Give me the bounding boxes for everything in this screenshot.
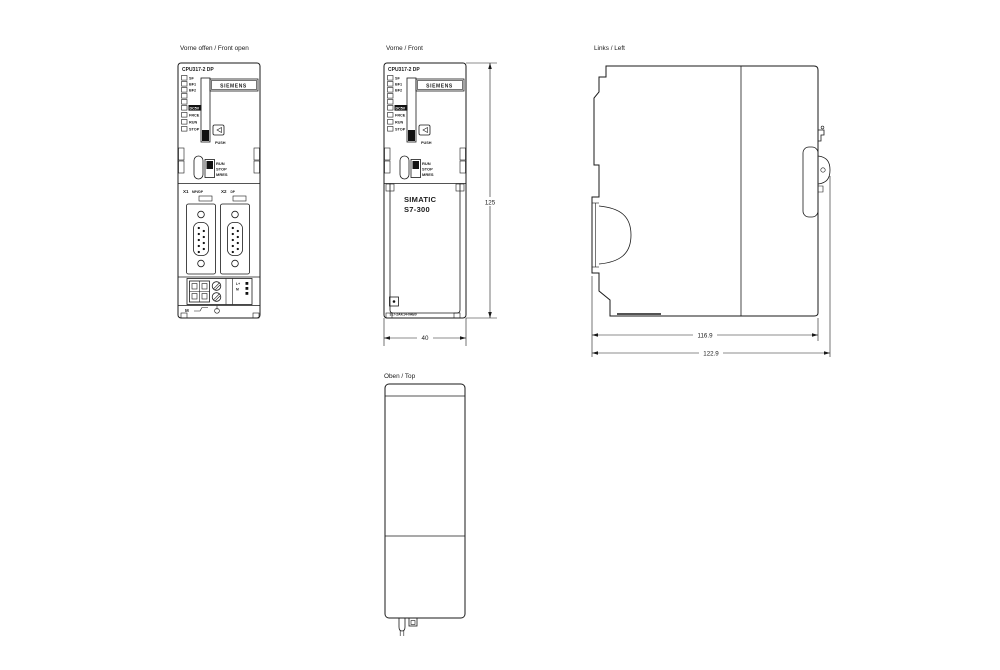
led-label-run: RUN — [395, 121, 403, 125]
mode-selector-switch: RUN STOP MRES — [400, 156, 434, 179]
hinge-tab — [179, 148, 185, 160]
hinge-tab — [179, 161, 185, 173]
hinge-tab — [460, 161, 466, 173]
memory-card-slot — [407, 78, 416, 142]
terminal-screw-icon — [212, 293, 221, 302]
switch-stop-label: STOP — [216, 167, 227, 172]
led-label-sf: SF — [395, 77, 401, 81]
side-profile-outline — [592, 66, 818, 316]
dimension-height-value: 125 — [485, 200, 496, 207]
terminal-m-label: M — [236, 288, 239, 292]
led-label-dc5v: DC5V — [396, 107, 406, 111]
din-rail-clip — [803, 126, 830, 217]
port-x2-type-label: DP — [231, 190, 236, 194]
title-left: Links / Left — [594, 45, 625, 52]
port-x1-label: X1 — [183, 189, 189, 194]
switch-symbol — [194, 308, 208, 312]
mounting-foot — [454, 313, 460, 318]
led-label-stop: STOP — [189, 128, 200, 132]
hinge-tab — [254, 161, 260, 173]
mode-selector-switch: RUN STOP MRES — [194, 156, 228, 179]
switch-mres-label: MRES — [216, 172, 228, 177]
view-top — [385, 384, 465, 636]
module-body-outline — [384, 63, 466, 318]
connector-latch — [233, 196, 246, 201]
dimension-depth-body-value: 116.9 — [697, 333, 713, 340]
cpu-header-label: CPU317-2 DP — [388, 67, 420, 73]
bottom-m-label: M — [185, 308, 189, 313]
led-label-run: RUN — [189, 121, 197, 125]
dimensional-drawing: Vorne offen / Front open Vorne / Front L… — [0, 0, 1000, 670]
hinge-tab — [385, 148, 391, 160]
led-label-bf1: BF1 — [395, 83, 402, 87]
switch-mres-label: MRES — [422, 172, 434, 177]
brand-label: SIEMENS — [220, 84, 247, 90]
mounting-foot — [181, 313, 187, 318]
product-name-line1: SIMATIC — [404, 195, 437, 204]
brand-label: SIEMENS — [426, 84, 453, 90]
switch-stop-label: STOP — [422, 167, 433, 172]
cpu-header-label: CPU317-2 DP — [182, 67, 214, 73]
terminal-screw-icon — [212, 282, 221, 291]
eject-button-icon — [419, 125, 430, 135]
hinge-tab — [254, 148, 260, 160]
dsub-connector-x1 — [187, 204, 216, 274]
dimension-height-125: 125 — [466, 63, 498, 318]
terminal-lplus-label: L+ — [236, 282, 240, 286]
led-label-sf: SF — [189, 77, 195, 81]
dsub-connector-x2 — [221, 204, 250, 274]
push-label: PUSH — [215, 141, 226, 145]
module-body-outline — [178, 63, 260, 318]
led-block: SF BF1 BF2 DC5V FRCE RUN STOP — [388, 76, 408, 132]
switch-run-label: RUN — [422, 161, 431, 166]
ground-symbol-icon — [215, 306, 220, 314]
port-x2-label: X2 — [221, 189, 227, 194]
push-label: PUSH — [421, 141, 432, 145]
switch-run-label: RUN — [216, 161, 225, 166]
front-cover: SIMATIC S7-300 317-2AK14-0AB0 — [384, 184, 466, 317]
product-name-line2: S7-300 — [404, 205, 430, 214]
power-terminal-block: L+ M — [187, 279, 252, 305]
title-top: Oben / Top — [384, 373, 416, 380]
side-dsub-bump — [592, 203, 631, 267]
connector-latch — [199, 196, 212, 201]
title-front-open: Vorne offen / Front open — [180, 45, 249, 52]
led-label-frce: FRCE — [395, 114, 406, 118]
led-block: SF BF1 BF2 DC5V FRCE RUN STOP — [182, 76, 202, 132]
led-label-stop: STOP — [395, 128, 406, 132]
led-label-dc5v: DC5V — [190, 107, 200, 111]
port-x1-type-label: MPI/DP — [192, 190, 204, 194]
hinge-tab — [460, 148, 466, 160]
dimension-width-value: 40 — [422, 335, 429, 342]
view-front: CPU317-2 DP SF BF1 BF2 DC5V FRCE RUN STO… — [384, 63, 466, 318]
hinge-tab — [385, 161, 391, 173]
mounting-foot — [253, 313, 259, 318]
top-outline — [385, 384, 465, 618]
led-label-frce: FRCE — [189, 114, 200, 118]
siemens-logo: SIEMENS — [416, 79, 464, 91]
led-label-bf2: BF2 — [189, 89, 196, 93]
eject-button-icon — [213, 125, 224, 135]
led-label-bf1: BF1 — [189, 83, 196, 87]
order-number-label: 317-2AK14-0AB0 — [390, 313, 417, 317]
dimension-depth-total-value: 122.9 — [703, 351, 719, 358]
top-connector-pins — [399, 618, 417, 636]
memory-card-slot — [201, 78, 210, 142]
view-left: 116.9 122.9 — [592, 66, 830, 358]
led-label-bf2: BF2 — [395, 89, 402, 93]
dimension-width-40: 40 — [384, 318, 466, 346]
siemens-logo: SIEMENS — [210, 79, 258, 91]
title-front: Vorne / Front — [386, 45, 423, 52]
view-front-open: CPU317-2 DP SF BF1 BF2 DC5V FRCE RUN STO… — [178, 63, 260, 318]
drawing-page: Vorne offen / Front open Vorne / Front L… — [0, 0, 1000, 670]
